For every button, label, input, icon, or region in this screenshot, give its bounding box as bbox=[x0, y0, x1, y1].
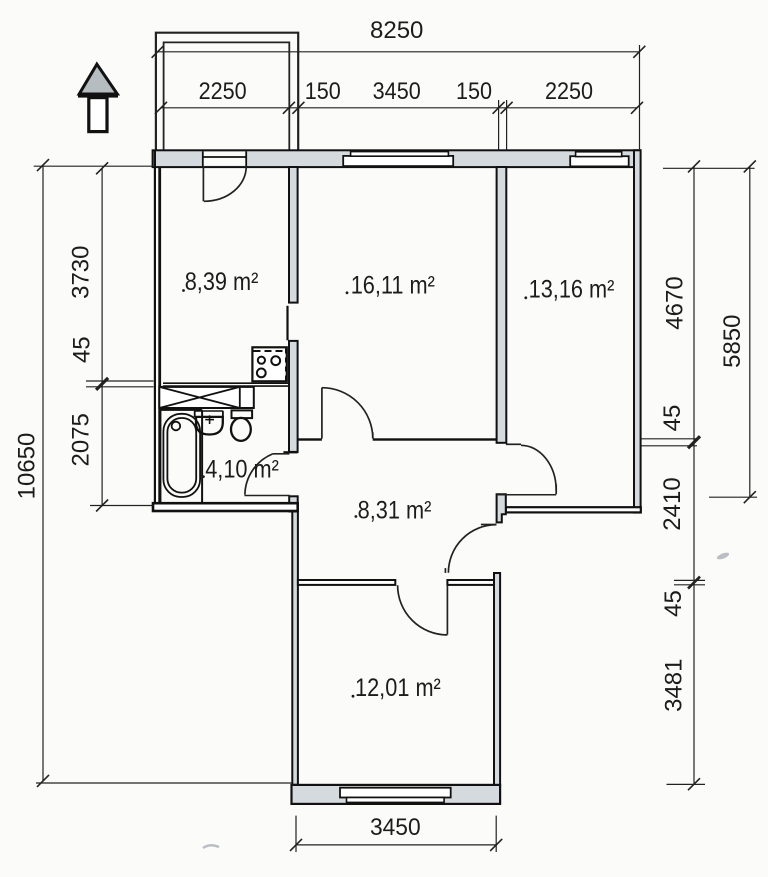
svg-text:3450: 3450 bbox=[370, 813, 421, 840]
svg-text:8250: 8250 bbox=[370, 17, 423, 44]
svg-text:2250: 2250 bbox=[199, 77, 247, 104]
svg-text:45: 45 bbox=[69, 336, 96, 363]
svg-text:8,31 m²: 8,31 m² bbox=[358, 496, 432, 524]
svg-text:3481: 3481 bbox=[660, 659, 687, 712]
svg-text:2410: 2410 bbox=[659, 477, 686, 530]
svg-text:45: 45 bbox=[660, 590, 687, 617]
svg-text:16,11 m²: 16,11 m² bbox=[351, 271, 435, 299]
svg-text:2250: 2250 bbox=[545, 77, 593, 104]
svg-text:5850: 5850 bbox=[719, 315, 746, 368]
svg-text:4,10 m²: 4,10 m² bbox=[205, 455, 279, 483]
svg-text:45: 45 bbox=[659, 405, 686, 432]
svg-text:150: 150 bbox=[456, 77, 492, 104]
svg-text:12,01 m²: 12,01 m² bbox=[355, 674, 441, 702]
svg-text:10650: 10650 bbox=[14, 433, 41, 500]
svg-text:3450: 3450 bbox=[373, 77, 421, 104]
svg-text:4670: 4670 bbox=[662, 276, 689, 329]
svg-text:8,39 m²: 8,39 m² bbox=[185, 268, 259, 296]
svg-text:3730: 3730 bbox=[68, 246, 95, 299]
svg-text:2075: 2075 bbox=[68, 413, 95, 466]
svg-text:13,16 m²: 13,16 m² bbox=[529, 275, 615, 303]
svg-text:150: 150 bbox=[305, 77, 341, 104]
